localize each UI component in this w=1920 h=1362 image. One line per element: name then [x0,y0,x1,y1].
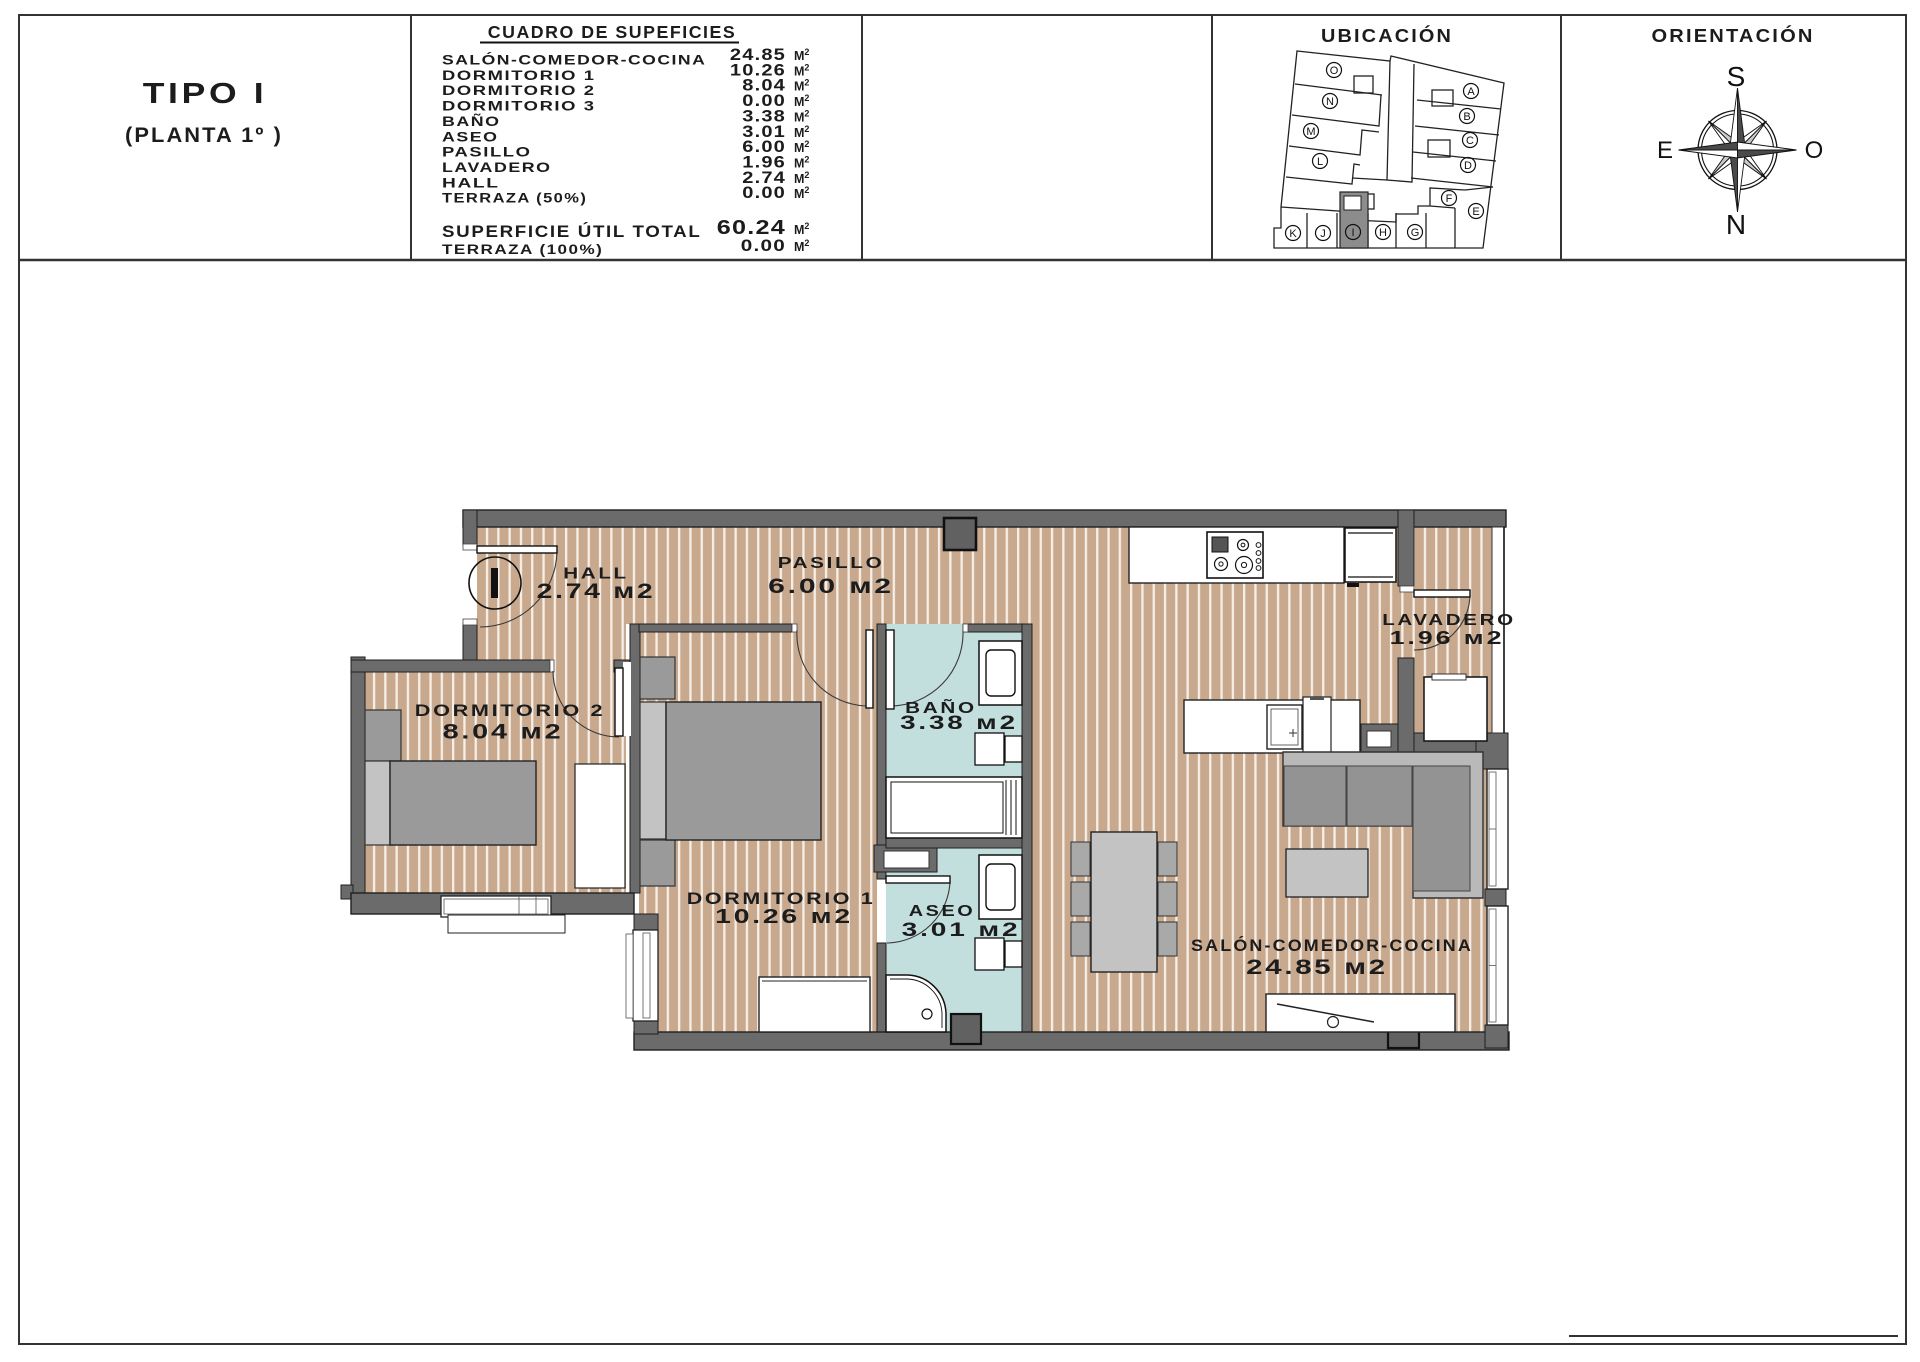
svg-text:DORMITORIO 1: DORMITORIO 1 [442,68,596,83]
svg-text:6.00 м2: 6.00 м2 [768,573,894,598]
svg-text:PASILLO: PASILLO [442,145,532,160]
svg-text:3.01 м2: 3.01 м2 [902,919,1021,941]
svg-text:C: C [1466,135,1474,147]
svg-text:SUPERFICIE ÚTIL TOTAL: SUPERFICIE ÚTIL TOTAL [442,221,701,241]
svg-text:24.85 м2: 24.85 м2 [1246,956,1388,979]
svg-text:10.26 м2: 10.26 м2 [715,906,853,928]
svg-text:A: A [1467,86,1475,98]
svg-text:(PLANTA 1º ): (PLANTA 1º ) [125,123,283,147]
svg-text:8.04 м2: 8.04 м2 [443,720,564,743]
svg-text:G: G [1411,227,1420,239]
svg-text:TERRAZA (50%): TERRAZA (50%) [442,191,587,207]
svg-text:DORMITORIO 2: DORMITORIO 2 [415,702,606,720]
svg-text:E: E [1657,137,1673,164]
svg-text:ASEO: ASEO [909,902,976,919]
svg-text:SALÓN-COMEDOR-COCINA: SALÓN-COMEDOR-COCINA [1191,936,1473,955]
svg-text:CUADRO DE SUPEFICIES: CUADRO DE SUPEFICIES [488,22,736,42]
svg-text:2.74 м2: 2.74 м2 [537,579,656,603]
svg-text:LAVADERO: LAVADERO [442,160,552,176]
svg-text:ORIENTACIÓN: ORIENTACIÓN [1651,24,1814,47]
svg-text:UBICACIÓN: UBICACIÓN [1321,26,1453,47]
svg-text:D: D [1464,160,1472,172]
svg-text:L: L [1317,156,1323,168]
svg-text:1.96 м2: 1.96 м2 [1390,627,1505,648]
svg-text:DORMITORIO 3: DORMITORIO 3 [442,99,596,114]
svg-text:N: N [1326,96,1334,108]
svg-text:DORMITORIO 2: DORMITORIO 2 [442,83,596,98]
svg-text:SALÓN-COMEDOR-COCINA: SALÓN-COMEDOR-COCINA [442,51,706,68]
svg-text:M: M [1306,126,1315,138]
svg-text:3.38 м2: 3.38 м2 [900,712,1018,734]
svg-text:N: N [1726,209,1746,240]
svg-text:BAÑO: BAÑO [442,112,500,129]
svg-text:S: S [1727,61,1746,92]
svg-text:I: I [1351,227,1354,239]
svg-text:0.00: 0.00 [742,183,786,202]
svg-text:B: B [1463,111,1470,123]
svg-text:F: F [1446,193,1453,205]
svg-text:0.00: 0.00 [741,237,786,256]
svg-text:60.24: 60.24 [717,215,786,238]
svg-text:LAVADERO: LAVADERO [1382,611,1516,628]
svg-text:HALL: HALL [442,175,500,191]
svg-text:K: K [1289,228,1297,240]
svg-text:E: E [1472,206,1479,218]
svg-text:O: O [1330,65,1339,77]
svg-text:O: O [1805,137,1824,164]
svg-text:PASILLO: PASILLO [778,554,885,572]
svg-text:TIPO I: TIPO I [143,77,268,109]
svg-text:ASEO: ASEO [442,130,499,145]
svg-text:H: H [1379,227,1387,239]
svg-text:TERRAZA (100%): TERRAZA (100%) [442,242,603,257]
svg-text:J: J [1320,228,1326,240]
